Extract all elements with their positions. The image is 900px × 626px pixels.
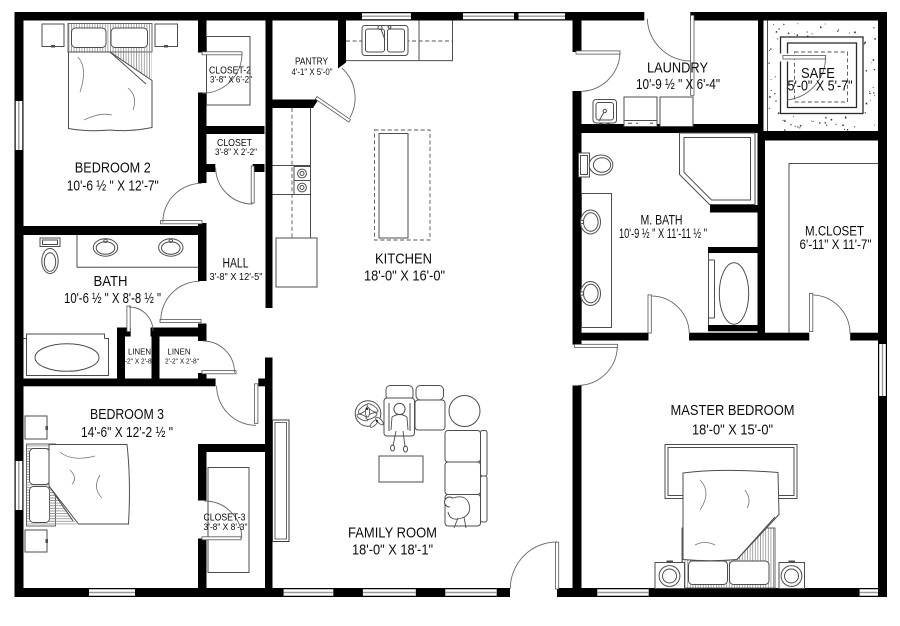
svg-text:10'-6 ½ " X 12'-7": 10'-6 ½ " X 12'-7" <box>67 178 159 195</box>
svg-text:4'-1" X 5'-0": 4'-1" X 5'-0" <box>292 67 333 77</box>
svg-text:18'-0" X 15'-0": 18'-0" X 15'-0" <box>692 422 773 439</box>
svg-text:3'-8" X 8'-3": 3'-8" X 8'-3" <box>204 522 248 532</box>
svg-text:LAUNDRY: LAUNDRY <box>647 60 708 77</box>
svg-text:10'-6 ½ " X 8'-8 ½ ": 10'-6 ½ " X 8'-8 ½ " <box>64 290 161 307</box>
svg-text:BATH: BATH <box>94 273 128 290</box>
svg-text:18'-0" X 18'-1": 18'-0" X 18'-1" <box>352 542 433 559</box>
svg-text:10'-9 ½ " X 11'-11 ½ ": 10'-9 ½ " X 11'-11 ½ " <box>619 226 707 241</box>
svg-text:PANTRY: PANTRY <box>295 57 328 68</box>
svg-text:MASTER BEDROOM: MASTER BEDROOM <box>671 402 795 419</box>
svg-text:KITCHEN: KITCHEN <box>375 251 432 268</box>
svg-text:BEDROOM 3: BEDROOM 3 <box>90 406 164 423</box>
svg-text:10'-9 ½ " X 6'-4": 10'-9 ½ " X 6'-4" <box>636 76 720 93</box>
svg-text:18'-0" X 16'-0": 18'-0" X 16'-0" <box>364 268 445 285</box>
svg-text:3'-8" X 2'-2": 3'-8" X 2'-2" <box>215 147 257 157</box>
svg-text:HALL: HALL <box>223 256 249 271</box>
svg-text:2'-2" X 2'-8": 2'-2" X 2'-8" <box>165 357 199 366</box>
svg-text:3'-8" X 6'-2": 3'-8" X 6'-2" <box>210 75 252 85</box>
svg-text:6'-11" X 11'-7": 6'-11" X 11'-7" <box>800 237 872 252</box>
svg-text:2'-2" X 2'-8": 2'-2" X 2'-8" <box>120 357 154 366</box>
svg-text:BEDROOM 2: BEDROOM 2 <box>75 160 151 177</box>
svg-text:5'-0" X 5'-7": 5'-0" X 5'-7" <box>788 78 853 95</box>
svg-text:FAMILY ROOM: FAMILY ROOM <box>348 525 437 542</box>
svg-text:14'-6" X 12'-2 ½ ": 14'-6" X 12'-2 ½ " <box>81 424 173 441</box>
svg-text:LINEN: LINEN <box>168 347 191 357</box>
svg-text:3'-8" X 12'-5": 3'-8" X 12'-5" <box>210 272 263 283</box>
svg-text:LINEN: LINEN <box>128 347 151 357</box>
